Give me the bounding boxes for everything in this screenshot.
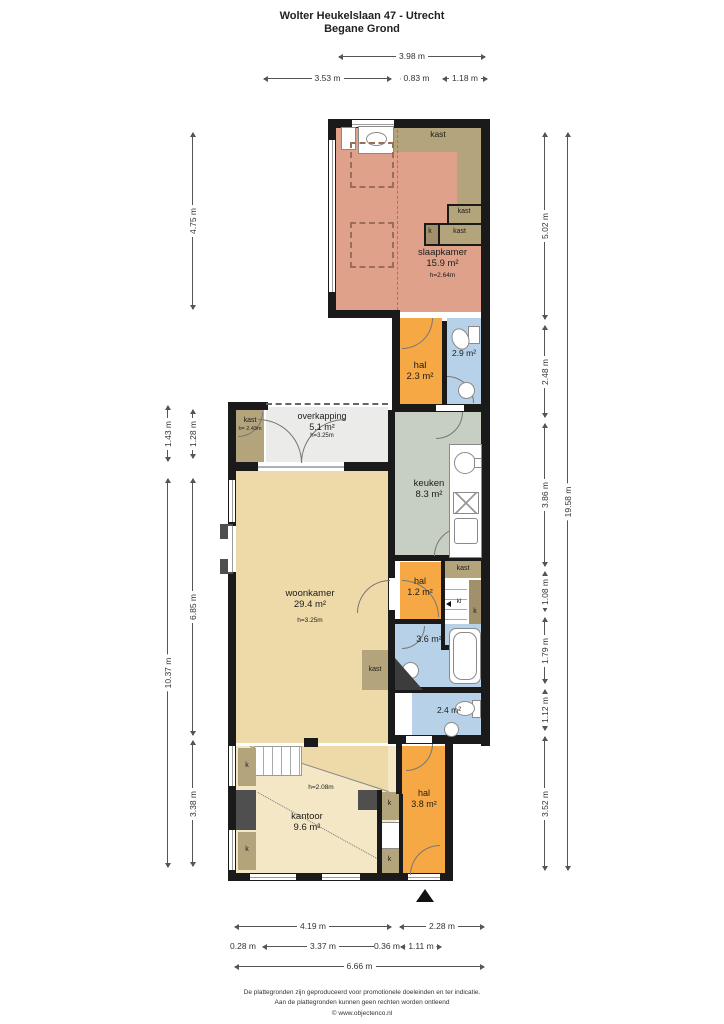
label-overkapping: overkapping 5.1 m² h=3.25m — [270, 411, 374, 440]
footer: De plattegronden zijn geproduceerd voor … — [0, 988, 724, 1019]
kl-arrow-icon — [446, 601, 451, 607]
closet-label: kast — [408, 130, 468, 139]
ceiling-line — [397, 130, 398, 310]
open-canopy-edge — [266, 403, 388, 405]
dim-bottom-5: 0.36 m — [374, 941, 400, 951]
wall-segment — [445, 740, 453, 881]
closet-label: kast — [447, 208, 481, 216]
dim-left-2: 1.43 m — [163, 405, 172, 462]
dim-top-3: 0.83 m — [400, 74, 433, 83]
label-hal-boven: hal 2.3 m² — [398, 360, 442, 382]
room-area: 2.3 m² — [398, 371, 442, 382]
closet-slaapkamer-right — [457, 152, 481, 206]
room-area: 1.2 m² — [398, 587, 442, 598]
label-kantoor-ceiling: h=2.08m — [295, 784, 347, 792]
dim-left-5: 6.85 m — [188, 478, 197, 736]
closet-label: kast — [445, 565, 481, 573]
roof-window-icon — [350, 222, 394, 268]
dim-right-6: 1.12 m — [540, 689, 549, 731]
stairs-kantoor-icon — [254, 746, 302, 776]
room-ceiling: h=3.25m — [255, 617, 365, 625]
closet-name: kast — [236, 417, 264, 425]
dim-bottom-7: 6.66 m — [234, 962, 485, 971]
room-area: 5.1 m² — [270, 422, 374, 433]
window — [250, 874, 296, 880]
label-slaapkamer: slaapkamer 15.9 m² h=2.64m — [390, 247, 495, 280]
room-name: hal — [402, 788, 446, 799]
wall-segment — [396, 741, 402, 794]
label-hal-midden: hal 1.2 m² — [398, 576, 442, 597]
door-box — [380, 822, 400, 849]
room-name: overkapping — [270, 411, 374, 422]
door-opening — [436, 405, 464, 411]
kitchen-appliance-icon — [454, 518, 478, 544]
wall-segment — [304, 738, 318, 747]
room-area: 2.4 m² — [426, 705, 472, 715]
label-hal-entree: hal 3.8 m² — [402, 788, 446, 809]
label-keuken: keuken 8.3 m² — [398, 478, 460, 500]
faucet-icon — [474, 458, 482, 468]
room-area: 8.3 m² — [398, 489, 460, 500]
closet-label: k — [469, 608, 481, 616]
entrance-arrow-icon — [416, 889, 434, 902]
window — [229, 746, 235, 786]
wall-segment — [392, 619, 444, 624]
roof-window-icon — [350, 142, 394, 188]
room-name: slaapkamer — [390, 247, 495, 258]
bathtub-inner — [453, 632, 477, 680]
bay-window — [228, 526, 236, 572]
wall-segment — [388, 410, 395, 744]
dim-bottom-6: 1.11 m — [400, 942, 442, 951]
dim-bottom-1: 4.19 m — [234, 922, 392, 931]
closet-label: k — [424, 228, 436, 236]
kitchen-sink-icon — [454, 452, 476, 474]
dim-left-1: 4.75 m — [188, 132, 197, 310]
floorplan-page: Wolter Heukelslaan 47 - Utrecht Begane G… — [0, 0, 724, 1024]
label-toilet: 2.4 m² — [426, 705, 472, 715]
sink-icon — [444, 722, 459, 737]
room-area: 15.9 m² — [390, 258, 495, 269]
dim-right-2: 2.48 m — [540, 325, 549, 418]
label-badkamer-boven: 2.9 m² — [445, 348, 483, 358]
room-area: 2.9 m² — [445, 348, 483, 358]
window — [322, 874, 360, 880]
dim-top-2: 3.53 m — [263, 74, 392, 83]
dim-bottom-4: 3.37 m — [262, 942, 384, 951]
dim-left-6: 3.38 m — [188, 740, 197, 867]
closet-ceiling: h= 2.43m — [236, 426, 264, 432]
closet-label: k — [238, 762, 256, 770]
closet-label: k — [380, 800, 399, 808]
label-badkamer-midden: 3.6 m² — [404, 634, 454, 645]
label-kast-tuin: kast h= 2.43m — [236, 417, 264, 433]
closet-label: k — [380, 856, 399, 864]
label-woonkamer: woonkamer 29.4 m² h=3.25m — [255, 588, 365, 625]
room-area: 3.8 m² — [402, 799, 446, 810]
dim-right-4: 1.08 m — [540, 571, 549, 612]
toilet-anteroom — [395, 693, 412, 735]
footer-line-2: Aan de plattegronden kunnen geen rechten… — [0, 998, 724, 1008]
wall-segment — [228, 402, 236, 881]
french-door-threshold — [258, 466, 344, 468]
dim-right-7: 3.52 m — [540, 736, 549, 871]
dim-top-4: 1.18 m — [442, 74, 488, 83]
dim-left-4: 10.37 m — [163, 478, 172, 868]
room-name: kantoor — [262, 811, 352, 822]
wall-segment — [228, 462, 258, 471]
page-title: Wolter Heukelslaan 47 - Utrecht — [0, 10, 724, 22]
room-name: keuken — [398, 478, 460, 489]
door-opening — [406, 736, 432, 743]
closet-label: k — [238, 846, 256, 854]
room-name: hal — [398, 360, 442, 371]
window — [229, 830, 235, 870]
closet-label: kast — [362, 666, 388, 674]
label-kantoor: kantoor 9.6 m² — [262, 811, 352, 833]
window — [229, 480, 235, 522]
room-area: 9.6 m² — [262, 822, 352, 833]
dim-right-8: 19.58 m — [563, 132, 572, 871]
dim-bottom-2: 2.28 m — [399, 922, 485, 931]
chimney-block — [233, 790, 256, 830]
stairs-label: kl — [452, 598, 466, 605]
dim-top-1: 3.98 m — [338, 52, 486, 61]
room-area: 29.4 m² — [255, 599, 365, 610]
window — [329, 140, 335, 292]
dim-right-1: 5.02 m — [540, 132, 549, 320]
sink-icon — [458, 382, 475, 399]
dim-left-3: 1.28 m — [188, 409, 197, 459]
footer-line-3: © www.objectenco.nl — [0, 1009, 724, 1019]
room-name: hal — [398, 576, 442, 587]
dim-right-5: 1.79 m — [540, 617, 549, 684]
room-ceiling: h=3.25m — [270, 433, 374, 440]
footer-line-1: De plattegronden zijn geproduceerd voor … — [0, 988, 724, 998]
wall-segment — [344, 462, 393, 471]
page-subtitle: Begane Grond — [0, 23, 724, 35]
room-area: 3.6 m² — [404, 634, 454, 645]
closet-label: kast — [438, 228, 481, 236]
dim-bottom-3: 0.28 m — [230, 941, 256, 951]
room-ceiling: h=2.64m — [390, 272, 495, 280]
wall-segment — [481, 119, 490, 746]
room-ceiling: h=2.08m — [295, 784, 347, 792]
dim-right-3: 3.86 m — [540, 423, 549, 567]
wall-segment — [328, 310, 400, 318]
room-name: woonkamer — [255, 588, 365, 599]
